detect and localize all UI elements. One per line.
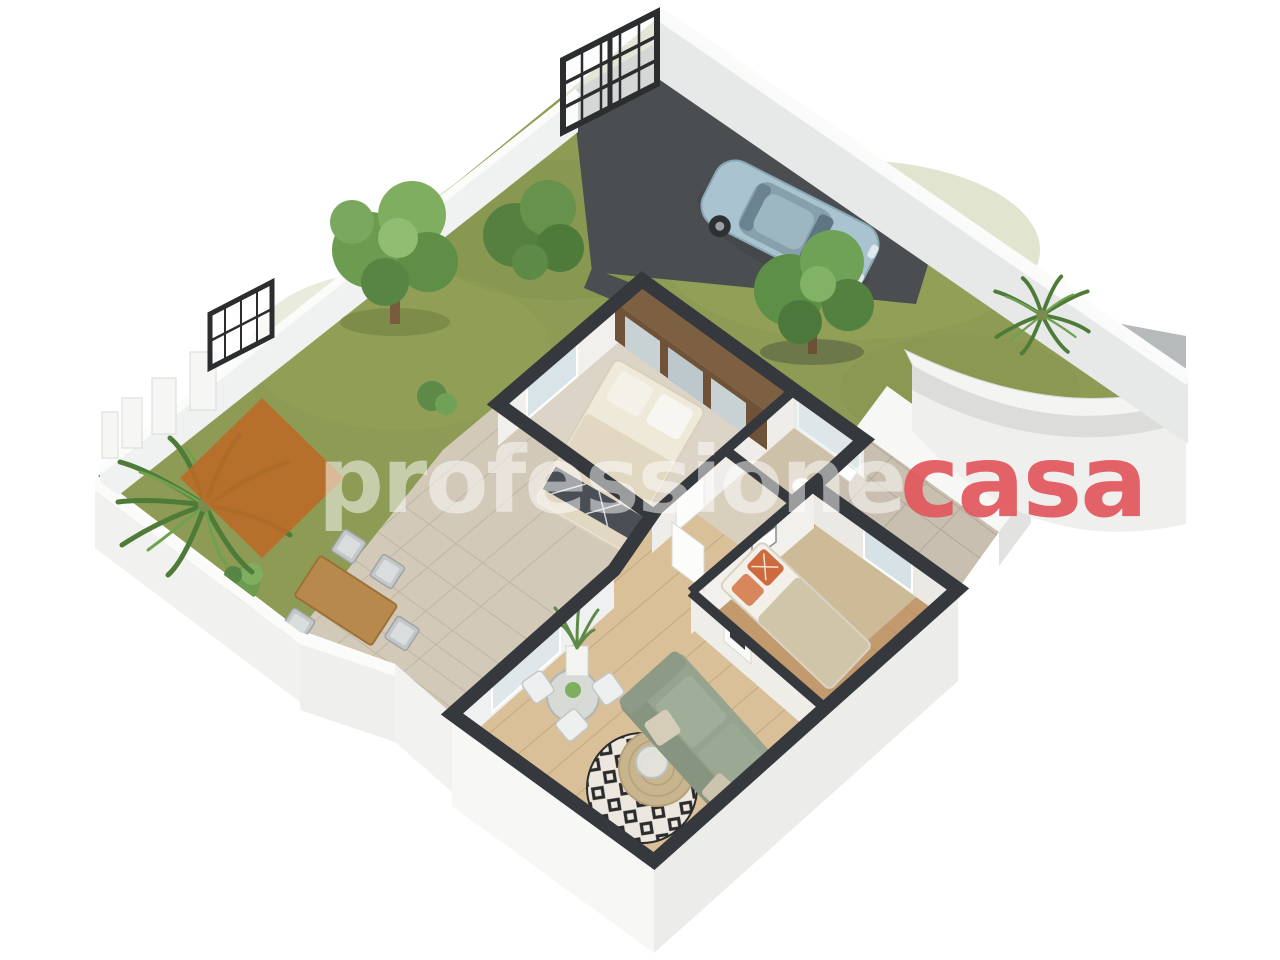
watermark-text-professione: professione — [318, 427, 905, 534]
floorplan-render-page: professione casa — [0, 0, 1280, 960]
palm-crown — [1037, 310, 1048, 321]
watermark-text-casa: casa — [900, 423, 1146, 540]
tree-foliage — [361, 258, 409, 306]
table-centerpiece — [565, 682, 581, 698]
wall-pillar — [152, 378, 176, 434]
tree-foliage-highlight — [800, 266, 836, 302]
floorplan-3d-render: professione casa — [0, 0, 1280, 960]
bush-foliage — [435, 393, 457, 415]
tree-foliage — [512, 244, 548, 280]
tree-foliage-highlight — [378, 218, 418, 258]
tree-foliage — [330, 200, 374, 244]
planter-box — [566, 646, 588, 676]
tree-foliage — [778, 300, 822, 344]
wall-pillar — [102, 412, 118, 458]
wall-pillar — [122, 398, 142, 448]
